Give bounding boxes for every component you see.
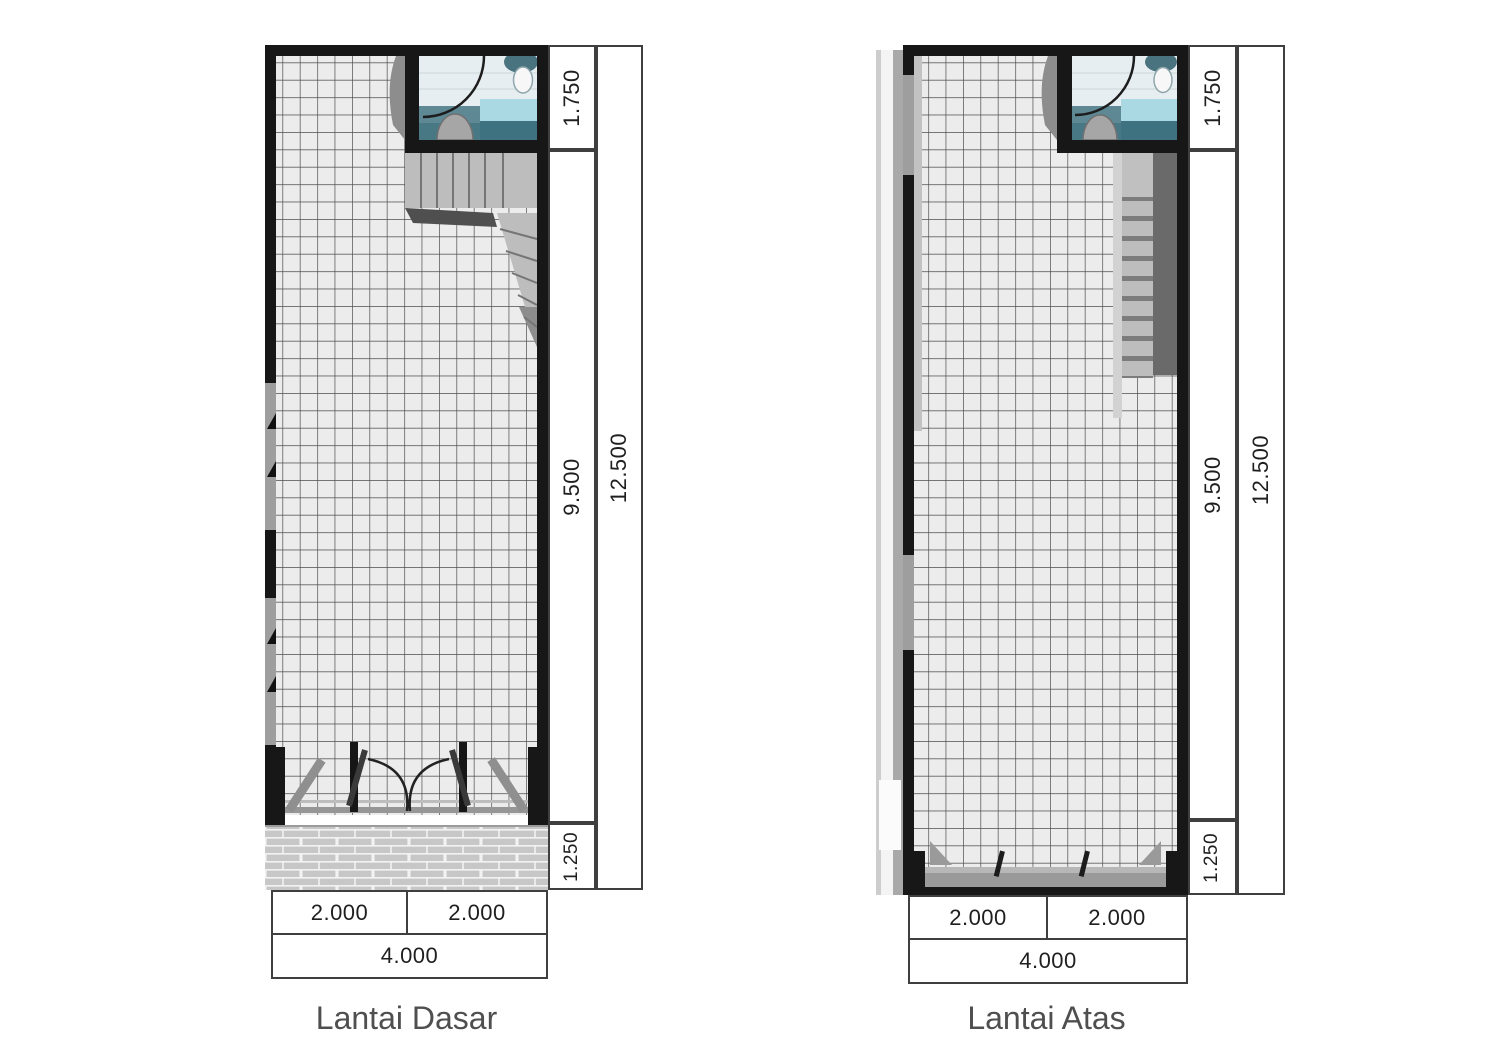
bathroom [1042, 52, 1188, 153]
bathroom [390, 51, 548, 153]
dim-label: 9.500 [1200, 456, 1226, 514]
dim-box-dasar-1750: 1.750 [548, 45, 596, 150]
dim-label: 2.000 [1088, 905, 1146, 931]
plan-title-lantai-dasar: Lantai Dasar [265, 1000, 548, 1037]
side-canopy [876, 50, 903, 895]
dim-label: 2.000 [949, 905, 1007, 931]
plan-title-lantai-atas: Lantai Atas [905, 1000, 1188, 1037]
dim-box-atas-2000-right: 2.000 [1046, 895, 1188, 940]
lantai-dasar-drawing [265, 45, 548, 890]
water-tub [1121, 99, 1177, 121]
dim-label: 9.500 [559, 458, 585, 516]
dim-label: 12.500 [607, 432, 633, 502]
floor-plans-canvas: 1.750 9.500 1.250 12.500 2.000 2.000 4.0… [0, 0, 1500, 1060]
dim-box-dasar-4000: 4.000 [271, 933, 548, 979]
dim-label: 2.000 [311, 900, 369, 926]
front-porch-bricks [265, 825, 548, 890]
toilet-fixture [514, 67, 533, 93]
dim-label: 4.000 [1019, 948, 1077, 974]
dim-box-atas-4000: 4.000 [908, 938, 1188, 984]
dim-box-dasar-2000-right: 2.000 [406, 890, 548, 935]
dim-box-dasar-12500: 12.500 [596, 45, 643, 890]
dim-box-atas-1750: 1.750 [1188, 45, 1237, 150]
dim-box-atas-9500: 9.500 [1188, 150, 1237, 820]
dim-label: 12.500 [1248, 435, 1274, 505]
dim-box-atas-2000-left: 2.000 [908, 895, 1048, 940]
dim-box-dasar-2000-left: 2.000 [271, 890, 408, 935]
dim-label: 1.250 [1202, 832, 1224, 882]
dim-label: 1.750 [559, 69, 585, 127]
dim-box-atas-1250: 1.250 [1188, 820, 1237, 895]
water-tub [480, 99, 537, 121]
dim-label: 4.000 [381, 943, 439, 969]
lantai-atas-drawing [876, 45, 1188, 895]
dim-box-atas-12500: 12.500 [1237, 45, 1285, 895]
dim-label: 1.750 [1200, 69, 1226, 127]
dim-label: 2.000 [448, 900, 506, 926]
toilet-fixture [1154, 68, 1172, 93]
dim-box-dasar-9500: 9.500 [548, 150, 596, 823]
dim-label: 1.250 [561, 831, 583, 881]
dim-box-dasar-1250: 1.250 [548, 823, 596, 890]
